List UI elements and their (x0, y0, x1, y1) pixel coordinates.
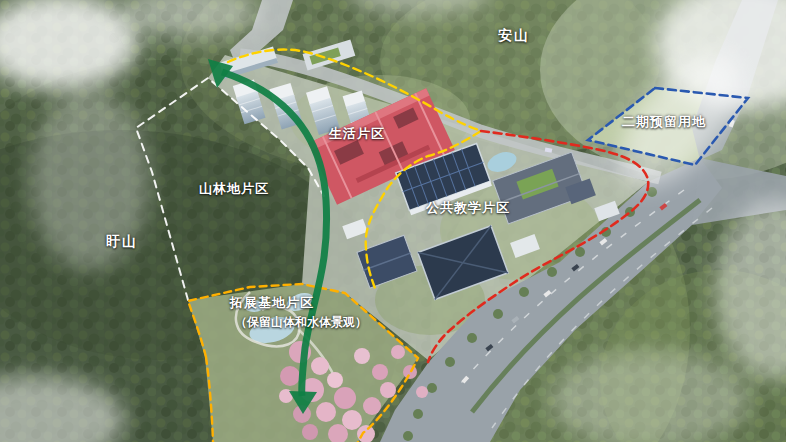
site-plan-canvas (0, 0, 786, 442)
masterplan-aerial-rendering: 安山 二期预留用地 生活片区 山林地片区 盱山 公共教学片区 拓展基地片区 （保… (0, 0, 786, 442)
